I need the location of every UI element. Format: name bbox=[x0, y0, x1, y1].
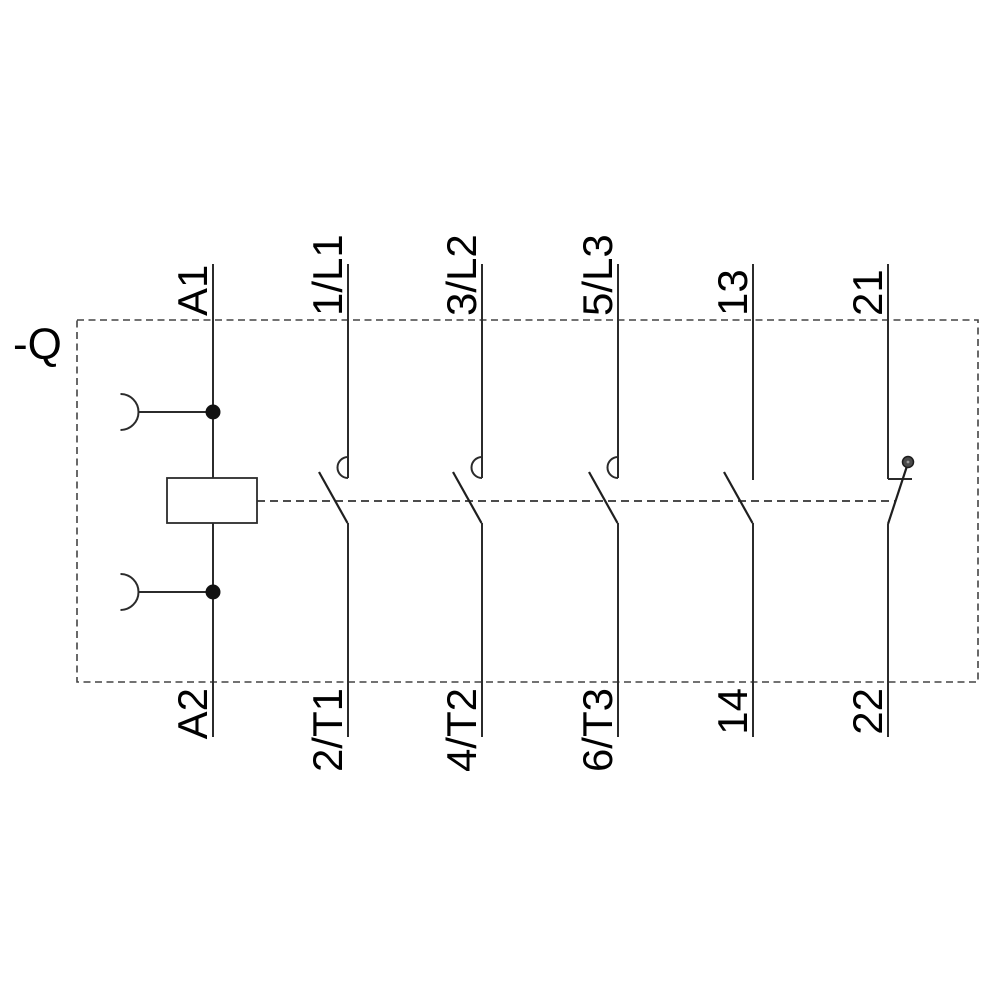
terminal-label-22: 22 bbox=[844, 688, 891, 735]
main-pole-3: 5/L3 6/T3 bbox=[574, 234, 621, 772]
moving-contact-line-3l2 bbox=[453, 472, 482, 523]
plug-connector-arc-top bbox=[121, 394, 139, 430]
coil-symbol bbox=[167, 478, 257, 523]
terminal-label-6t3: 6/T3 bbox=[574, 688, 621, 772]
terminal-label-21: 21 bbox=[844, 269, 891, 316]
coil-pole: A1 A2 bbox=[121, 264, 258, 739]
plug-connector-arc-bottom bbox=[121, 574, 139, 610]
terminal-label-3l2: 3/L2 bbox=[438, 234, 485, 316]
terminal-label-a2: A2 bbox=[169, 688, 216, 739]
aux-nc-pole: 21 22 bbox=[844, 264, 914, 737]
nc-pivot-dot-core bbox=[907, 461, 910, 464]
terminal-label-5l3: 5/L3 bbox=[574, 234, 621, 316]
schematic-canvas: -Q A1 A2 1/L1 2/T1 3/L2 4/T2 bbox=[0, 0, 1000, 1000]
contactor-schematic: -Q A1 A2 1/L1 2/T1 3/L2 4/T2 bbox=[0, 0, 1000, 1000]
moving-contact-line-21 bbox=[888, 463, 908, 524]
terminal-label-14: 14 bbox=[709, 688, 756, 735]
moving-contact-line-1l1 bbox=[319, 472, 348, 523]
moving-contact-line-13 bbox=[724, 472, 753, 523]
terminal-label-2t1: 2/T1 bbox=[304, 688, 351, 772]
junction-dot-bottom bbox=[206, 585, 221, 600]
main-pole-1: 1/L1 2/T1 bbox=[304, 234, 351, 772]
fixed-contact-arc-1l1 bbox=[338, 457, 349, 478]
main-pole-2: 3/L2 4/T2 bbox=[438, 234, 485, 772]
moving-contact-line-5l3 bbox=[589, 472, 618, 523]
terminal-label-4t2: 4/T2 bbox=[438, 688, 485, 772]
terminal-label-a1: A1 bbox=[169, 265, 216, 316]
fixed-contact-arc-3l2 bbox=[472, 457, 483, 478]
junction-dot-top bbox=[206, 405, 221, 420]
terminal-label-1l1: 1/L1 bbox=[304, 234, 351, 316]
terminal-label-13: 13 bbox=[709, 269, 756, 316]
device-label: -Q bbox=[13, 320, 62, 369]
fixed-contact-arc-5l3 bbox=[608, 457, 619, 478]
